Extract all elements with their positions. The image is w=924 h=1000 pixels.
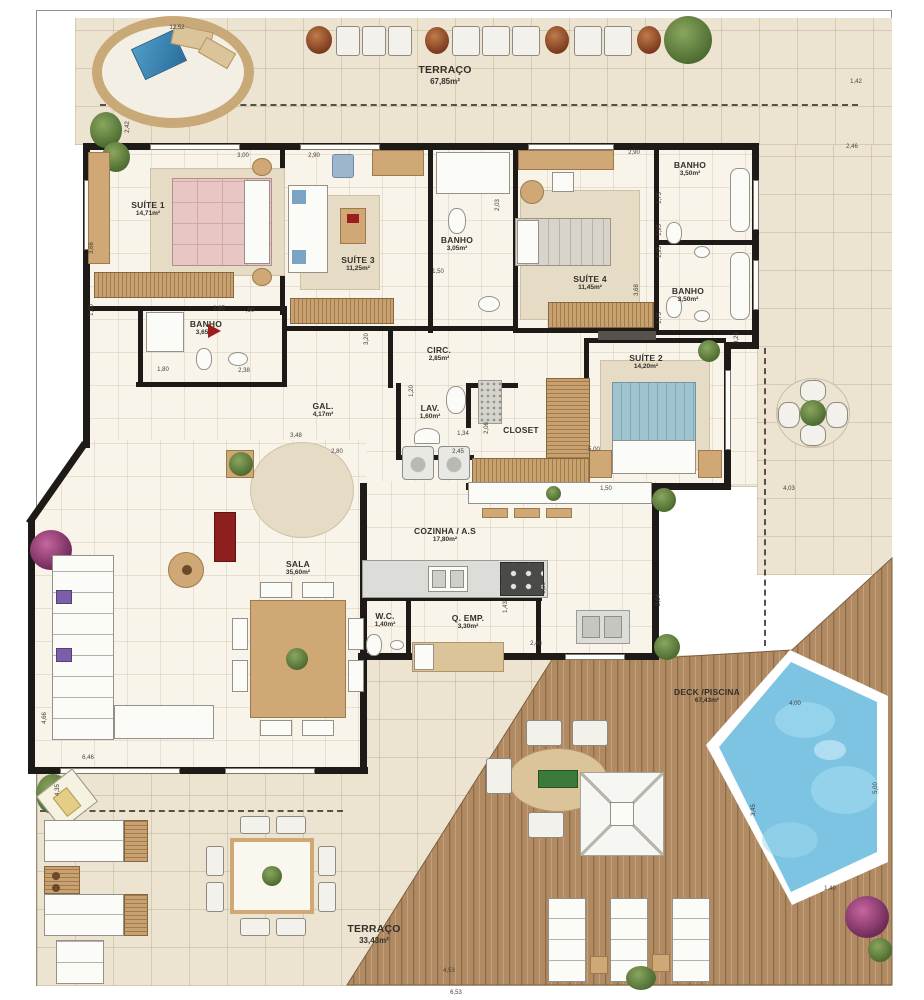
dashed-line-right (764, 348, 766, 646)
sun-lounger (44, 894, 124, 936)
tv-panel (214, 512, 236, 562)
umbrella-center (610, 802, 634, 826)
closet-mat (478, 380, 502, 424)
dresser (598, 331, 656, 340)
wall (428, 326, 518, 331)
room-name: DECK /PISCINA (674, 687, 740, 697)
room-name: LAV. (420, 403, 441, 413)
dim-label: 1,00 (89, 304, 95, 316)
room-area: 35,60m² (286, 569, 310, 577)
wardrobe (548, 302, 654, 328)
dim-label: 1,42 (850, 79, 862, 85)
dim-label: 1,34 (457, 431, 469, 437)
room-name: SUÍTE 2 (629, 353, 663, 363)
outdoor-seat (800, 424, 826, 446)
deck-chair (528, 812, 564, 838)
room-area: 2,85m² (427, 355, 451, 363)
sink-basin (450, 570, 464, 588)
plant-pot (545, 26, 569, 54)
toilet (448, 208, 466, 234)
cup (52, 872, 60, 880)
sofa-pillow (56, 590, 72, 604)
room-name: TERRAÇO (347, 923, 400, 936)
floor-plan-canvas: TERRAÇO 67,85m² SUÍTE 1 14,71m² SUÍTE 3 … (0, 0, 924, 1000)
dim-label: 6,53 (450, 990, 462, 996)
dim-label: 2,64 (656, 594, 662, 606)
dim-label: 2,03 (495, 199, 501, 211)
sofa-chaise (114, 705, 214, 739)
dim-label: 1,75 (657, 192, 663, 204)
plant (652, 488, 676, 512)
dim-label: 2,42 (125, 121, 131, 133)
room-label-qemp: Q. EMP. 3,30m² (452, 613, 484, 631)
sink-basin (432, 570, 446, 588)
room-name: COZINHA / A.S (414, 526, 476, 536)
chair (276, 816, 306, 834)
chair (318, 882, 336, 912)
sun-lounger (548, 898, 586, 982)
dim-label: 2,38 (238, 368, 250, 374)
sink (694, 246, 710, 258)
wall (282, 306, 287, 387)
room-name: SUÍTE 4 (573, 274, 607, 284)
dim-label: 1,43 (503, 601, 509, 613)
room-label-terraco-bottom: TERRAÇO 33,43m² (347, 923, 400, 945)
bowl (182, 565, 192, 575)
tank-basin (582, 616, 600, 638)
wall (396, 383, 401, 460)
room-name: CIRC. (427, 345, 451, 355)
bar-stool (514, 508, 540, 518)
bed-pillows (517, 220, 539, 264)
outdoor-seat (826, 402, 848, 428)
shower (436, 152, 510, 194)
chair (348, 618, 364, 650)
room-name: BANHO (672, 286, 704, 296)
dim-label: 3,66 (89, 242, 95, 254)
wall (654, 143, 659, 335)
room-name: SUÍTE 3 (341, 255, 375, 265)
bed-pillows (244, 180, 270, 264)
wall (283, 326, 433, 331)
room-area: 17,80m² (414, 536, 476, 544)
closet-wardrobe (472, 458, 590, 484)
plant (800, 400, 826, 426)
toilet (196, 348, 212, 370)
entrance-arrow-icon (208, 324, 221, 338)
terrace-sofa (574, 26, 602, 56)
chair (240, 918, 270, 936)
dim-label: 1,50 (600, 486, 612, 492)
dim-label: 6,46 (82, 755, 94, 761)
room-area: 11,25m² (341, 265, 375, 273)
nightstand (252, 268, 272, 286)
bathtub (730, 168, 750, 232)
dim-label: 2,46 (846, 144, 858, 150)
wall (428, 143, 433, 333)
bed-pillow (292, 250, 306, 264)
dim-label: 2,80 (331, 449, 343, 455)
window (753, 180, 759, 230)
dim-label: 2,45 (452, 449, 464, 455)
wall (388, 328, 393, 388)
terrace-sofa (336, 26, 360, 56)
plant-pot (306, 26, 332, 54)
outdoor-seat (778, 402, 800, 428)
nightstand (588, 450, 612, 478)
chair (206, 882, 224, 912)
dim-label: 4,66 (42, 712, 48, 724)
window (60, 768, 180, 774)
window (753, 260, 759, 310)
sink (414, 428, 440, 444)
dim-label: 4,00 (789, 701, 801, 707)
dim-label: 4,35 (55, 784, 61, 796)
deck-side-table (44, 866, 80, 894)
desk (372, 150, 424, 176)
wardrobe (94, 272, 234, 298)
deck-chair (526, 720, 562, 746)
wall (654, 330, 757, 335)
room-label-banho-r2: BANHO 3,50m² (672, 286, 704, 304)
room-label-sala: SALA 35,60m² (286, 559, 310, 577)
dim-label: 12,52 (169, 25, 184, 31)
wall (136, 382, 286, 387)
wall (752, 143, 759, 349)
plant-pot (425, 27, 449, 54)
dim-label: 3,00 (237, 153, 249, 159)
stove (500, 562, 544, 596)
room-name: W.C. (375, 611, 396, 621)
dim-label: 3,48 (290, 433, 302, 439)
dim-label: 3,20 (734, 332, 740, 344)
side-table (590, 956, 608, 974)
room-label-wc: W.C. 1,40m² (375, 611, 396, 629)
room-label-lav: LAV. 1,60m² (420, 403, 441, 421)
terrace-sofa (482, 26, 510, 56)
chair (348, 660, 364, 692)
chair (302, 720, 334, 736)
toilet (666, 222, 682, 244)
room-label-suite4: SUÍTE 4 11,45m² (573, 274, 607, 292)
dim-label: 2,85 (213, 306, 225, 312)
side-table (520, 180, 544, 204)
dim-label: 1,95 (657, 246, 663, 258)
room-label-banho-suite3: BANHO 3,05m² (441, 235, 473, 253)
tree (664, 16, 712, 64)
room-name: SALA (286, 559, 310, 569)
window (225, 768, 315, 774)
sun-lounger (672, 898, 710, 982)
room-area: 67,43m² (674, 697, 740, 705)
wall (406, 598, 411, 658)
closet-wardrobe (546, 378, 590, 462)
room-label-deck: DECK /PISCINA 67,43m² (674, 687, 740, 705)
room-label-suite2: SUÍTE 2 14,20m² (629, 353, 663, 371)
table-plant (262, 866, 282, 886)
dim-label: 1,80 (157, 367, 169, 373)
room-name: Q. EMP. (452, 613, 484, 623)
room-area: 33,43m² (347, 936, 400, 946)
dim-label: 5,00 (873, 782, 879, 794)
room-label-cozinha: COZINHA / A.S 17,80m² (414, 526, 476, 544)
lounger-footrest (124, 894, 148, 936)
bed-suite2 (612, 382, 696, 442)
dim-label: 4,03 (783, 486, 795, 492)
chair (302, 582, 334, 598)
dim-label: 3,20 (364, 333, 370, 345)
washer (402, 446, 434, 480)
room-area: 3,30m² (452, 623, 484, 631)
dim-label: 2,06 (484, 422, 490, 434)
room-area: 67,85m² (418, 77, 471, 87)
dim-label: 2,90 (308, 153, 320, 159)
terrace-sofa (388, 26, 412, 56)
room-name: GAL. (312, 401, 333, 411)
lounger-footrest (124, 820, 148, 862)
plant (868, 938, 892, 962)
room-label-terraco-top: TERRAÇO 67,85m² (418, 64, 471, 86)
chair (232, 618, 248, 650)
table-runner (538, 770, 578, 788)
nightstand (252, 158, 272, 176)
room-area: 3,50m² (672, 296, 704, 304)
room-name: SUÍTE 1 (131, 200, 165, 210)
room-label-suite1: SUÍTE 1 14,71m² (131, 200, 165, 218)
room-label-closet: CLOSET (503, 425, 539, 435)
bed-foot (612, 440, 696, 474)
chair (260, 582, 292, 598)
room-label-circ: CIRC. 2,85m² (427, 345, 451, 363)
room-name: BANHO (674, 160, 706, 170)
chair (260, 720, 292, 736)
sink (390, 640, 404, 650)
plant (845, 896, 889, 938)
dim-label: 1,75 (657, 312, 663, 324)
bar-stool (546, 508, 572, 518)
dim-label: ,90 (246, 308, 254, 314)
room-area: 3,05m² (441, 245, 473, 253)
plant (626, 966, 656, 990)
wardrobe (290, 298, 394, 324)
plant (229, 452, 253, 476)
window (150, 144, 240, 150)
chair (276, 918, 306, 936)
room-label-suite3: SUÍTE 3 11,25m² (341, 255, 375, 273)
desk (518, 150, 614, 170)
sun-lounger (44, 820, 124, 862)
room-name: BANHO (441, 235, 473, 245)
room-area: 11,45m² (573, 284, 607, 292)
room-area: 3,50m² (674, 170, 706, 178)
sink (228, 352, 248, 366)
side-table (652, 954, 670, 972)
window (300, 144, 380, 150)
chair (332, 154, 354, 178)
wall (536, 598, 541, 658)
room-label-gal: GAL. 4,17m² (312, 401, 333, 419)
plant-pot (637, 26, 661, 54)
room-area: 1,40m² (375, 621, 396, 629)
plant (654, 634, 680, 660)
dim-label: 5,00 (588, 447, 600, 453)
dim-label: 3,68 (634, 284, 640, 296)
sun-lounger (56, 940, 104, 984)
wall (466, 383, 471, 428)
terrace-sofa (452, 26, 480, 56)
terrace-sofa (362, 26, 386, 56)
bar-stool (482, 508, 508, 518)
toilet (446, 386, 466, 414)
terrace-sofa (604, 26, 632, 56)
dim-label: 3,45 (751, 804, 757, 816)
shower (146, 312, 184, 352)
bed-pillow (414, 644, 434, 670)
cup (52, 884, 60, 892)
dim-label: 2,48 (530, 641, 542, 647)
bathtub (730, 252, 750, 320)
plant (698, 340, 720, 362)
room-name: TERRAÇO (418, 64, 471, 77)
room-label-banho-tr: BANHO 3,50m² (674, 160, 706, 178)
chair (232, 660, 248, 692)
tv (347, 214, 359, 223)
dim-label: 1,40 (824, 886, 836, 892)
dim-label: 1,95 (657, 224, 663, 236)
dim-label: 1,20 (409, 385, 415, 397)
room-area: 14,20m² (629, 363, 663, 371)
plant (546, 486, 561, 501)
window (725, 370, 731, 450)
sink (478, 296, 500, 312)
room-area: 4,17m² (312, 411, 333, 419)
dim-label: 2,90 (628, 150, 640, 156)
sofa-pillow (56, 648, 72, 662)
window (565, 654, 625, 660)
dim-label: 4,53 (443, 968, 455, 974)
table-plant (286, 648, 308, 670)
deck-chair (572, 720, 608, 746)
chair (318, 846, 336, 876)
outdoor-seat (800, 380, 826, 402)
wall (138, 306, 143, 387)
tank-basin (604, 616, 622, 638)
wall (83, 306, 287, 311)
sink (694, 310, 710, 322)
deck-chair (486, 758, 512, 794)
stool (552, 172, 574, 192)
dim-label: 1,36 (541, 582, 547, 594)
chair (206, 846, 224, 876)
room-name: CLOSET (503, 425, 539, 435)
chair (240, 816, 270, 834)
nightstand (698, 450, 722, 478)
room-area: 1,60m² (420, 413, 441, 421)
bed-pillow (292, 190, 306, 204)
round-rug (250, 442, 354, 538)
toilet (366, 634, 382, 656)
room-area: 14,71m² (131, 210, 165, 218)
dim-label: 1,50 (432, 269, 444, 275)
terrace-sofa (512, 26, 540, 56)
